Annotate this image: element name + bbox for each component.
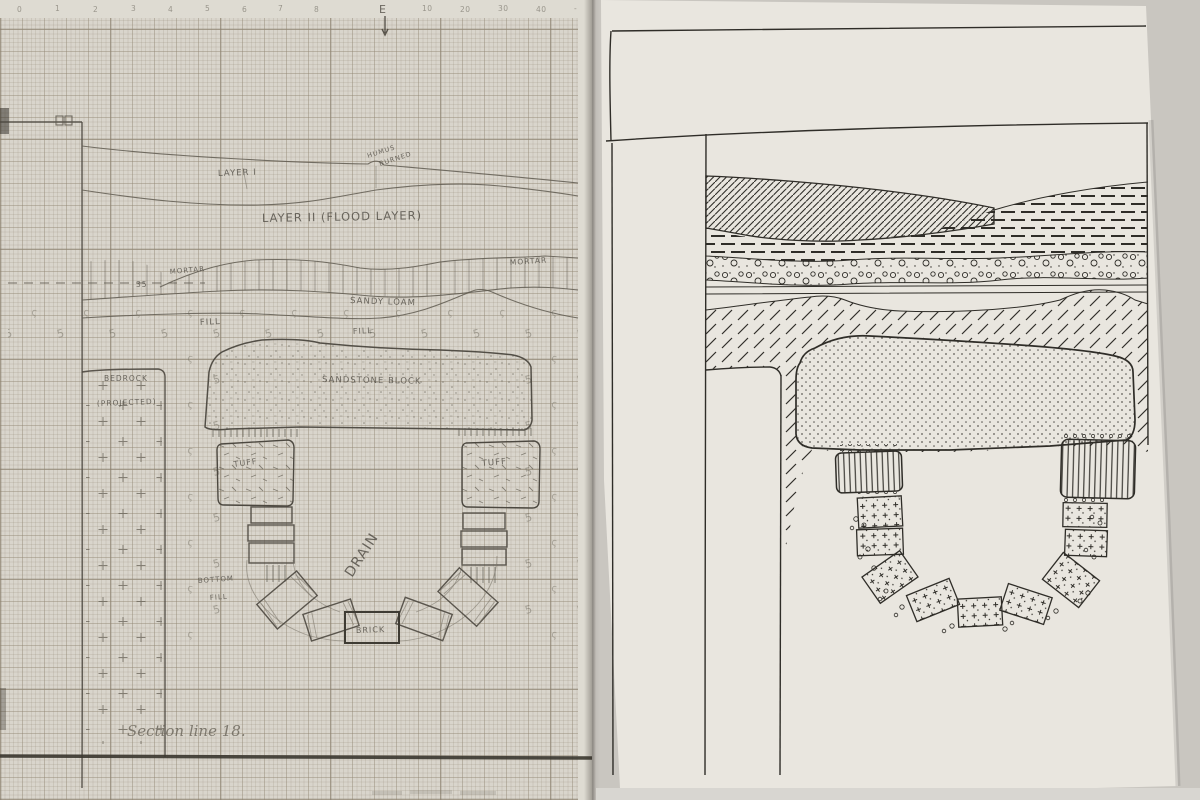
ruler-tick: - [574,4,577,13]
sandstone-stipple [796,336,1135,450]
ink-section-drawing-sheet [592,0,1200,800]
label-bedrock: BEDROCK [104,374,148,383]
mortar-seam [455,428,535,436]
ruler-tick: 4 [168,5,173,14]
ruler-tick: 5 [205,4,210,13]
pencil-section-drawing-sheet: 5 ς [0,0,592,800]
photo-edge-smudge [0,688,6,730]
ruler-tick: 6 [242,5,247,14]
pencil-drawing: 5 ς [0,0,592,800]
ruler-tick: 30 [498,4,509,13]
drain-pier-west [248,507,294,582]
baulk-line-west [82,122,83,788]
ruler-tick: 8 [314,5,319,14]
label-level-35: 35 [136,280,148,289]
surface-line [82,146,578,183]
photo-edge-smudge [0,108,9,134]
ruler-tick: 1 [55,4,60,13]
label-layer1: LAYER I [218,168,257,179]
label-brick: BRICK [356,625,386,635]
label-layer2: LAYER II (FLOOD LAYER) [262,208,422,225]
tuff-pier-east [1060,439,1135,499]
label-sandstone-block: SANDSTONE BLOCK [322,375,422,387]
layer1-base-line [82,184,578,205]
ruler-tick: 10 [422,4,433,13]
base-rule-line [0,756,592,758]
label-fill-mid: FILL [353,326,373,336]
tuff-block-west [217,440,294,506]
tuff-pier-west [835,451,902,493]
photo-of-section-drawings: 5 ς [0,0,1200,800]
east-marker-label: E [379,3,387,16]
ruler-tick: 40 [536,5,547,14]
tuff-block-east [462,441,540,508]
ruler-tick: 20 [460,5,471,14]
ruler-scale: 0 1 2 3 4 5 6 7 8 E 10 20 30 40 - [17,3,577,35]
ruler-tick: 3 [131,4,136,13]
ruler-tick: 0 [17,5,22,14]
cut-off-caption-smudge [372,792,496,793]
signature-caption: Section line 18. [127,722,246,740]
label-fill-upper: FILL [200,317,221,328]
mortar-seam [212,429,300,437]
label-drain: DRAIN [342,530,382,580]
ruler-tick: 2 [93,5,98,14]
label-bottom-fill: FILL [210,593,228,602]
table-surface [596,788,1200,800]
east-arrow-icon [382,16,388,35]
drain-pier-east [461,513,507,583]
bedrock-column [82,369,165,757]
ruler-tick: 7 [278,4,283,13]
